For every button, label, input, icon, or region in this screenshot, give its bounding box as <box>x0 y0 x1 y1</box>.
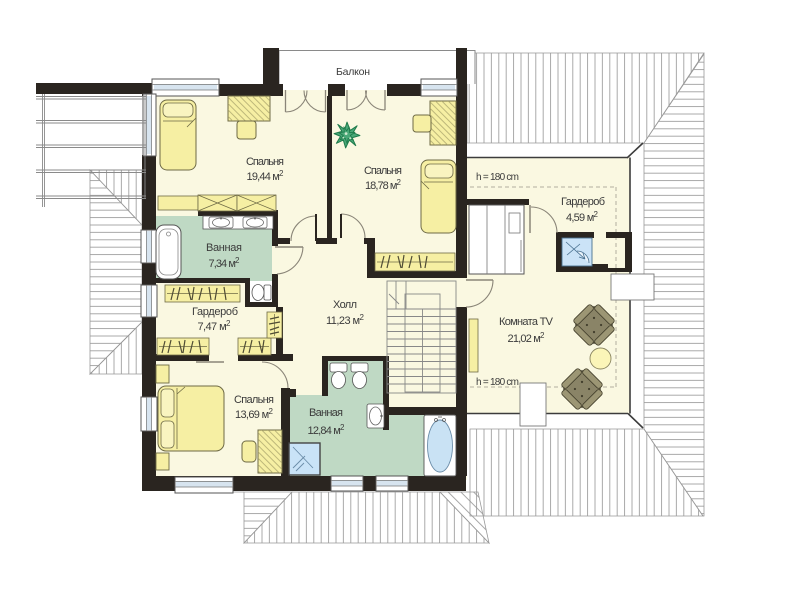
svg-text:Холл: Холл <box>333 299 357 311</box>
svg-text:21,02 м2: 21,02 м2 <box>508 331 546 345</box>
svg-text:Спальня: Спальня <box>364 165 402 177</box>
svg-text:4,59 м2: 4,59 м2 <box>566 210 599 224</box>
svg-text:7,34 м2: 7,34 м2 <box>209 256 241 270</box>
svg-text:7,47 м2: 7,47 м2 <box>198 319 232 333</box>
svg-text:11,23 м2: 11,23 м2 <box>326 313 365 327</box>
svg-text:Ванная: Ванная <box>206 242 242 254</box>
svg-text:Спальня: Спальня <box>234 394 274 406</box>
svg-text:h = 180 cm: h = 180 cm <box>476 172 519 183</box>
svg-text:19,44 м2: 19,44 м2 <box>247 169 285 183</box>
svg-text:Спальня: Спальня <box>246 156 284 168</box>
svg-text:Гардероб: Гардероб <box>192 306 238 318</box>
svg-text:Гардероб: Гардероб <box>561 196 605 208</box>
svg-text:Балкон: Балкон <box>336 66 370 78</box>
svg-text:18,78 м2: 18,78 м2 <box>365 178 402 192</box>
svg-text:12,84 м2: 12,84 м2 <box>308 423 346 437</box>
svg-text:Комната TV: Комната TV <box>499 316 554 328</box>
svg-text:h = 180 cm: h = 180 cm <box>476 377 519 388</box>
svg-text:13,69 м2: 13,69 м2 <box>235 407 274 421</box>
svg-text:Ванная: Ванная <box>309 407 343 419</box>
